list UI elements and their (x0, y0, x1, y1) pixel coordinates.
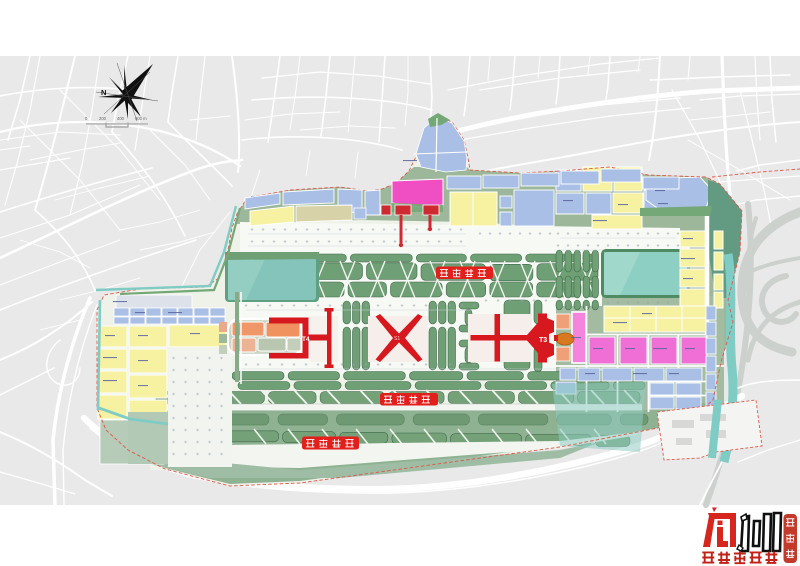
svg-text:600 m: 600 m (135, 116, 147, 121)
svg-text:S1: S1 (394, 336, 400, 342)
svg-text:200: 200 (99, 116, 107, 121)
svg-text:N: N (101, 88, 106, 97)
svg-text:T4: T4 (302, 336, 310, 343)
svg-text:400: 400 (117, 116, 125, 121)
svg-text:T3: T3 (539, 337, 547, 344)
